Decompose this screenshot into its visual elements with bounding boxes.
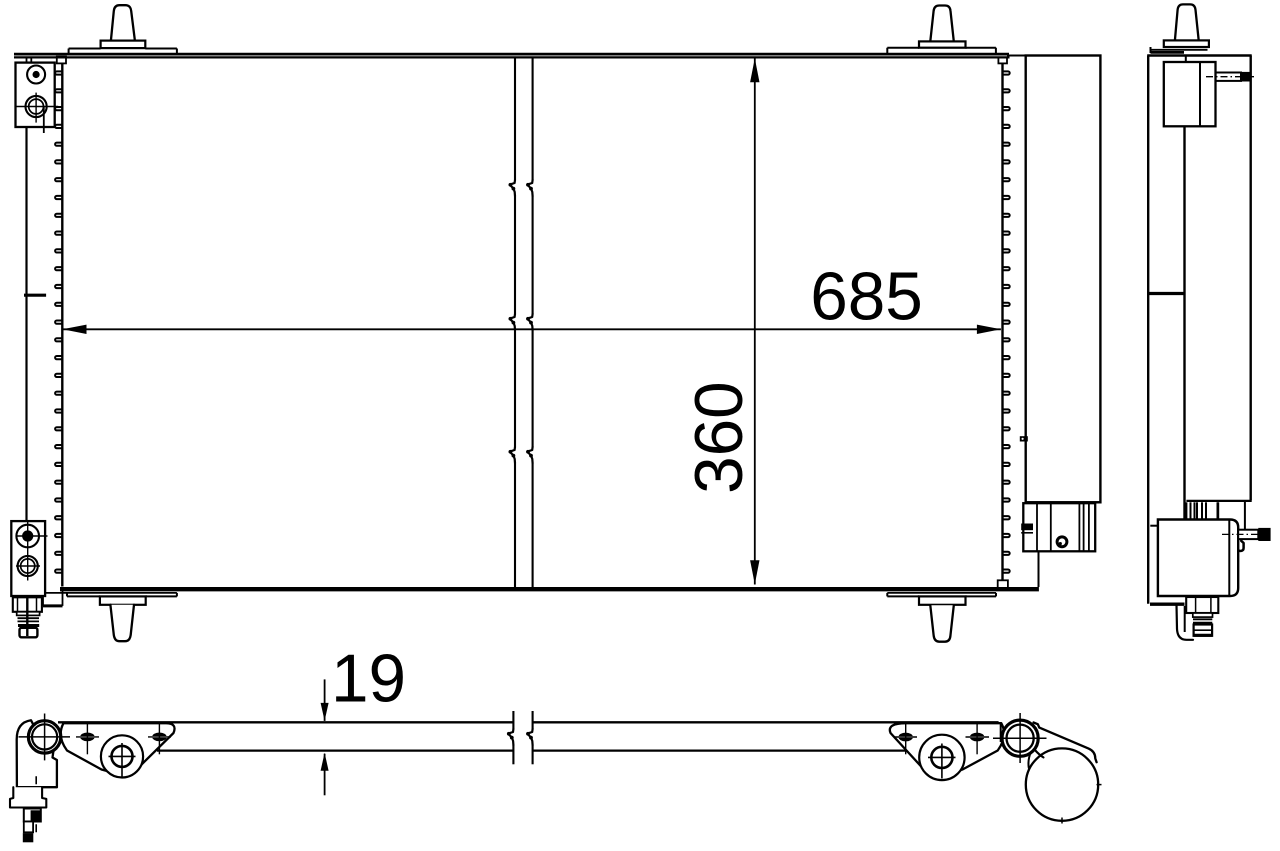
svg-text:360: 360 bbox=[682, 381, 757, 494]
svg-text:685: 685 bbox=[810, 260, 923, 335]
svg-text:19: 19 bbox=[331, 642, 406, 717]
